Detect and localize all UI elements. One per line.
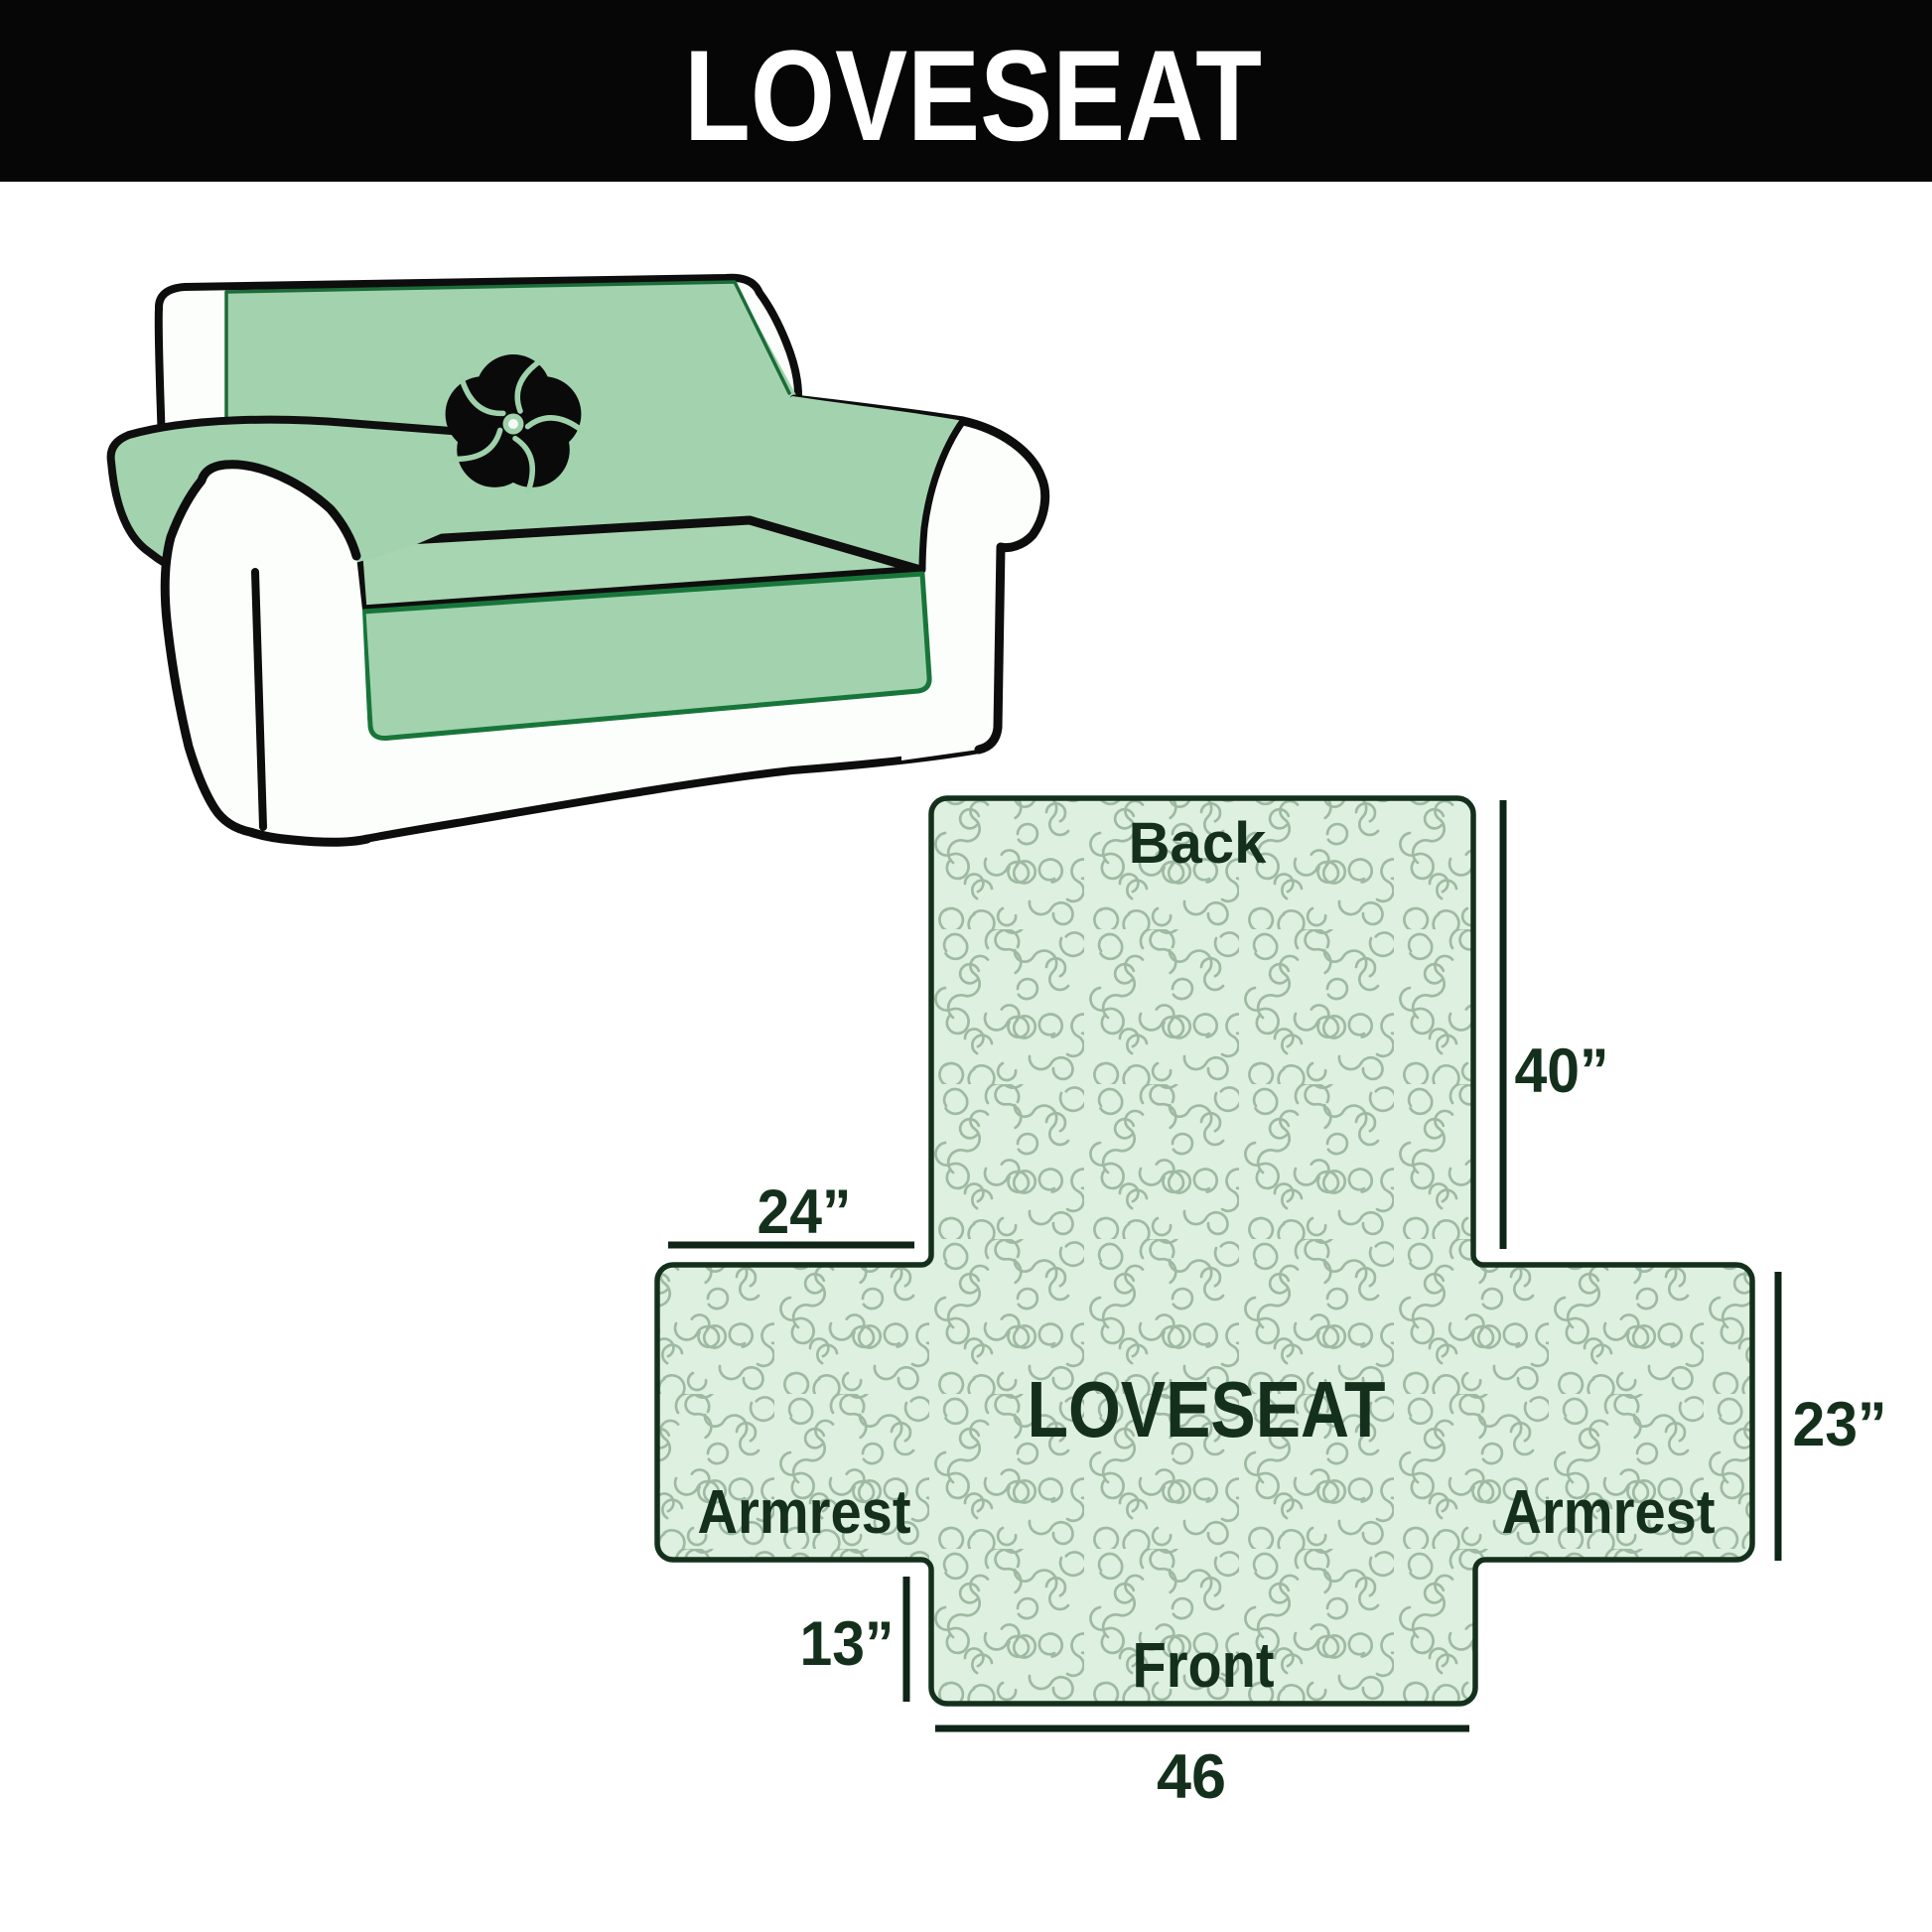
svg-text:40”: 40” (1515, 1036, 1609, 1106)
svg-text:LOVESEAT: LOVESEAT (684, 23, 1262, 168)
svg-text:23”: 23” (1793, 1390, 1887, 1459)
svg-text:24”: 24” (758, 1177, 852, 1247)
svg-text:Front: Front (1133, 1629, 1275, 1701)
svg-text:13”: 13” (800, 1609, 895, 1679)
svg-text:LOVESEAT: LOVESEAT (1028, 1365, 1386, 1453)
svg-text:Back: Back (1129, 811, 1267, 876)
svg-text:46: 46 (1157, 1742, 1226, 1812)
svg-text:Armrest: Armrest (698, 1478, 911, 1547)
svg-text:Armrest: Armrest (1502, 1478, 1716, 1547)
